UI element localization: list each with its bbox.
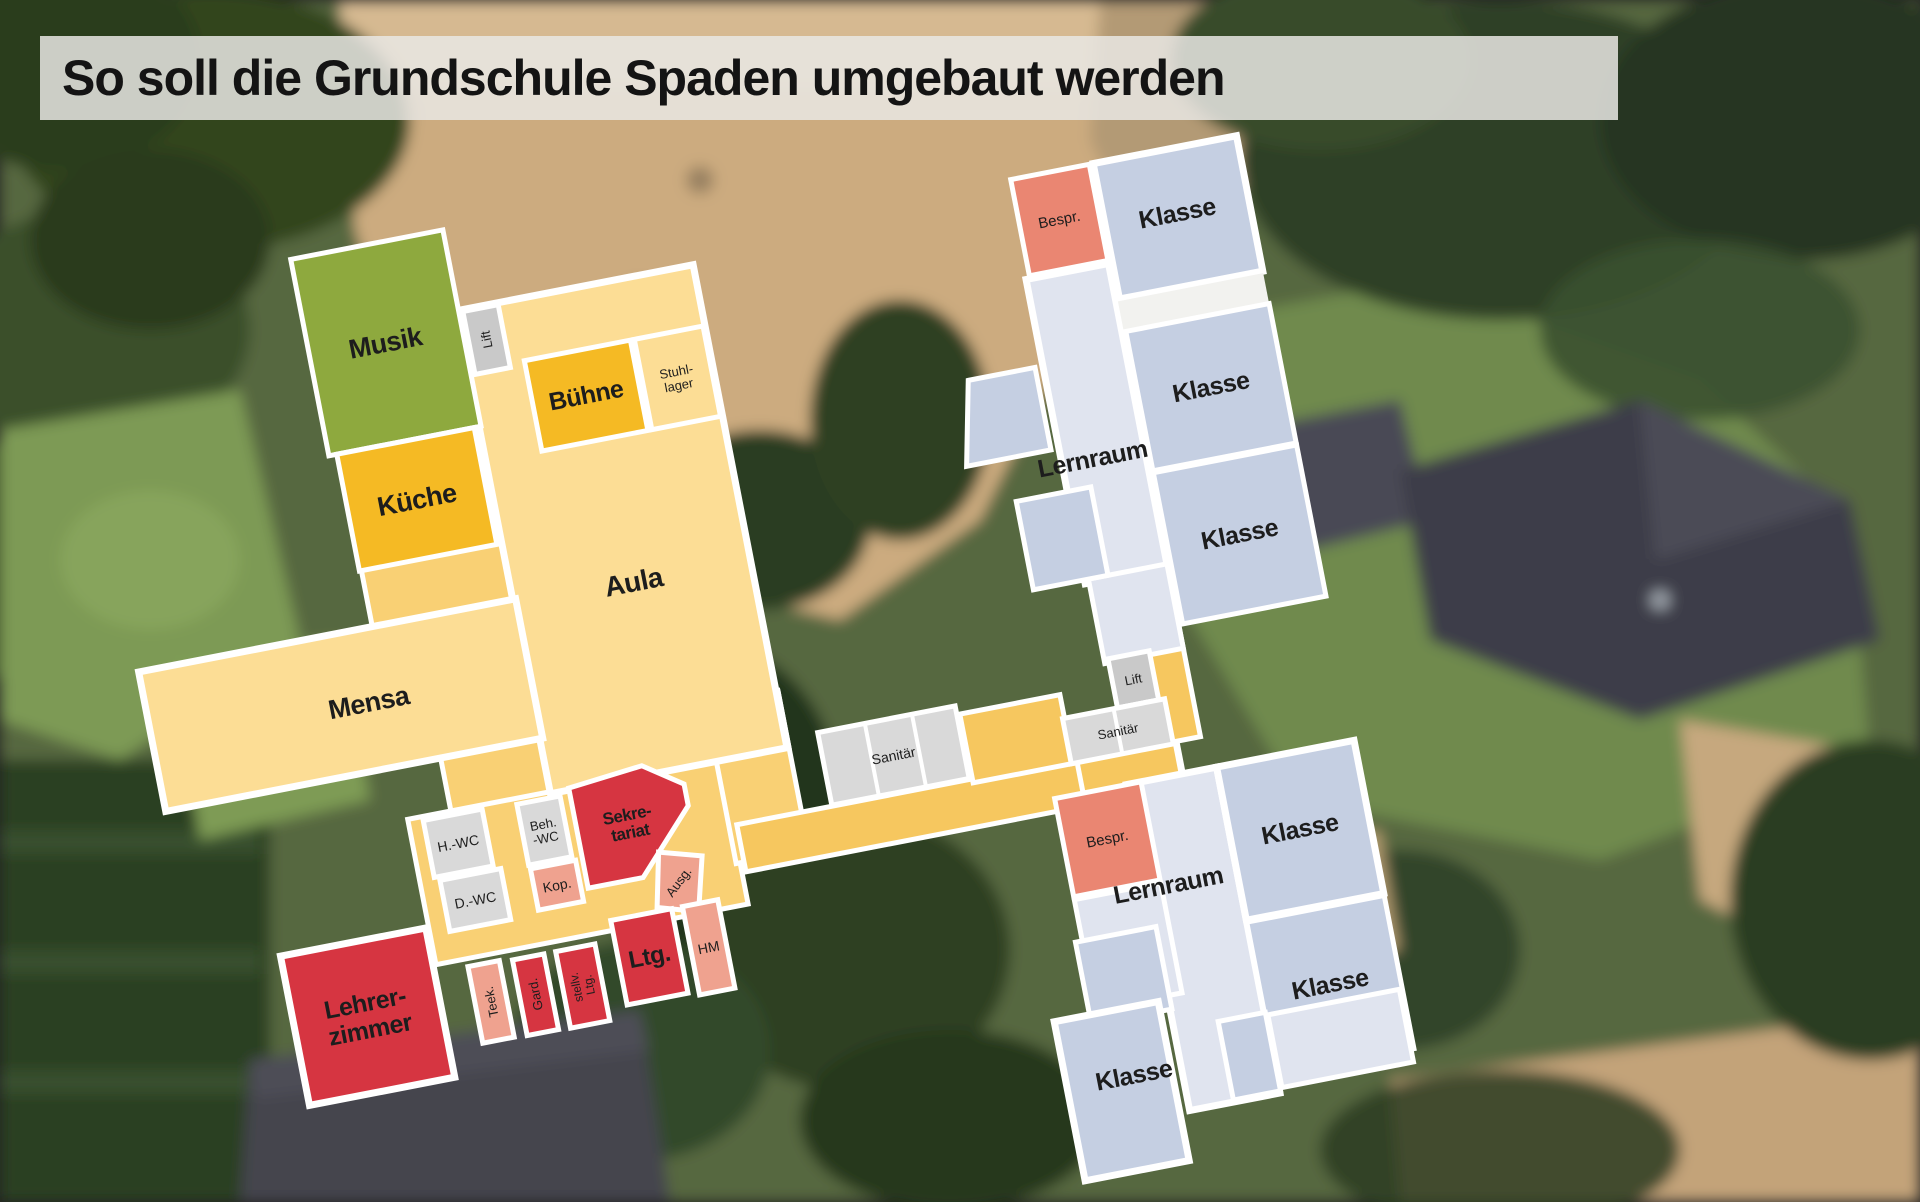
playground-item-2 <box>686 166 714 194</box>
hedge-row-3 <box>0 1070 260 1094</box>
trees-right-mid <box>1540 240 1860 420</box>
trees-between-buildings <box>810 300 990 540</box>
trees-left-3 <box>30 150 270 330</box>
lernraum-top-alcove-2 <box>1016 487 1108 590</box>
lawn-left-light <box>60 490 240 630</box>
hedge-row-2 <box>0 950 260 974</box>
roof-skylight <box>1650 590 1670 610</box>
trees-center-5 <box>800 1030 1100 1202</box>
title-bar: So soll die Grundschule Spaden umgebaut … <box>40 36 1618 120</box>
page-title: So soll die Grundschule Spaden umgebaut … <box>62 50 1225 106</box>
infographic-floorplan: Musik Lift Küche Bühne Stuhl-lager Aula … <box>0 0 1920 1202</box>
label-beh-wc: Beh.-WC <box>528 814 560 848</box>
aerial-photo-background <box>0 0 1920 1202</box>
